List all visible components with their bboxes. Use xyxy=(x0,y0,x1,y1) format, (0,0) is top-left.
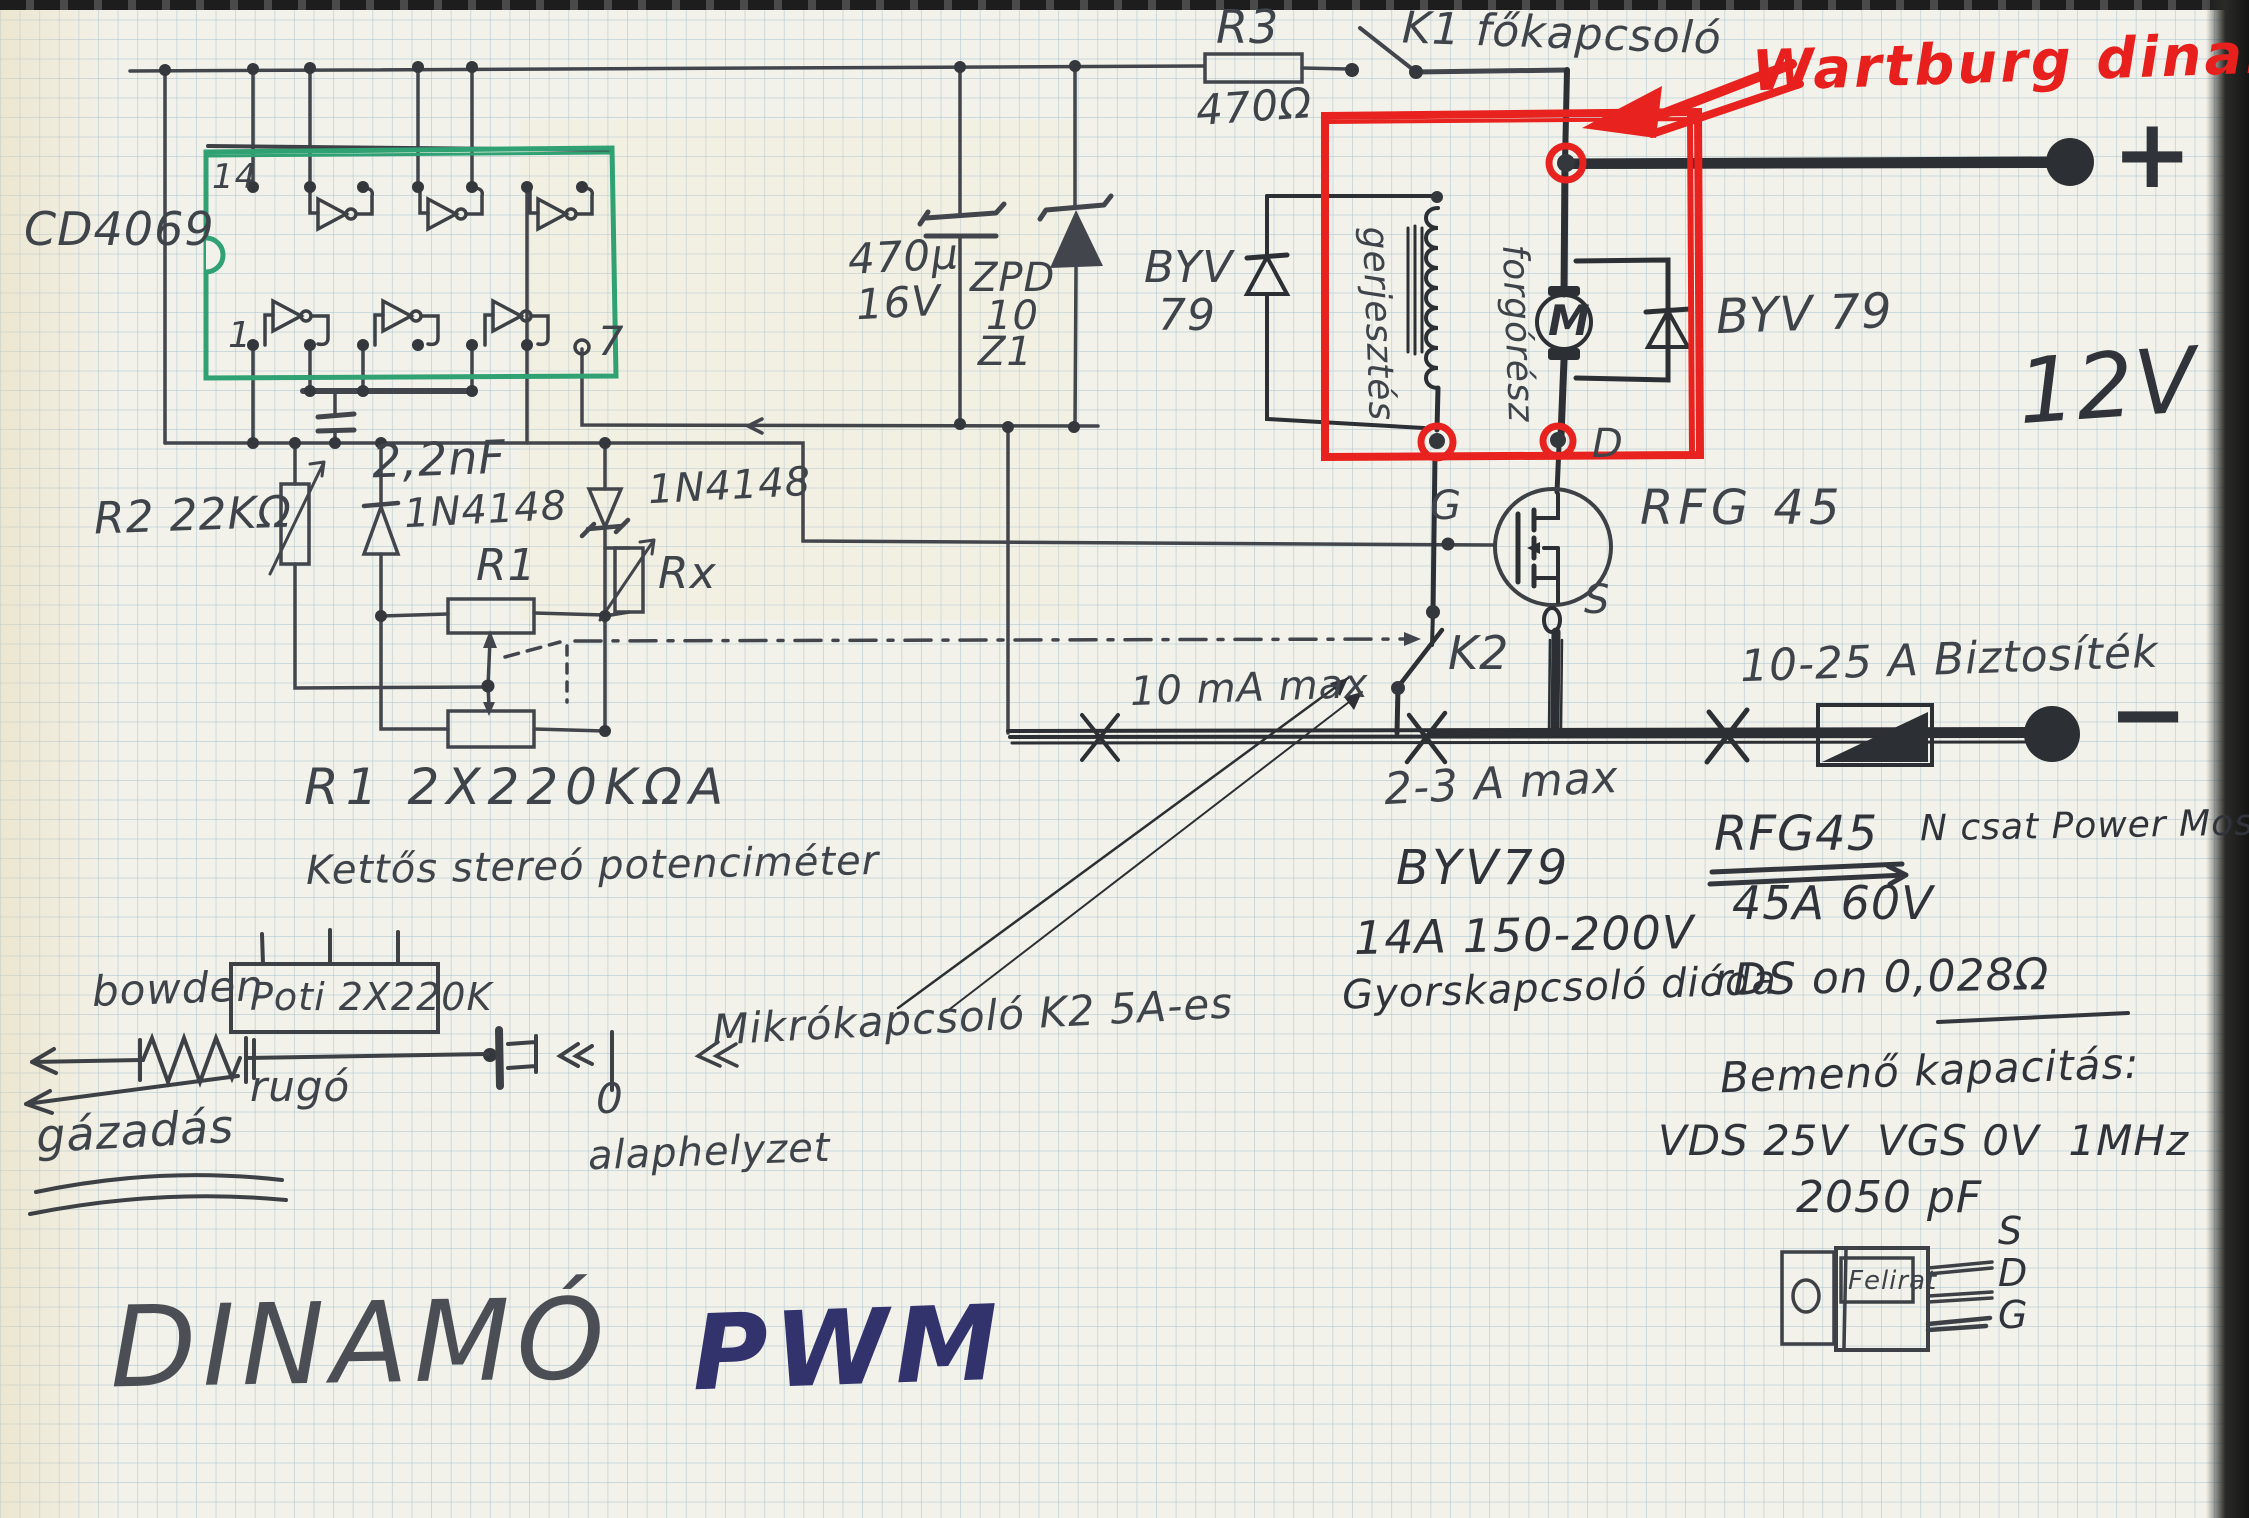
package-pin-d: D xyxy=(1998,1254,2028,1292)
mosfet-name: RFG 45 xyxy=(1640,484,1845,532)
rotor-label: forgórész xyxy=(1496,244,1538,423)
k1-switch-label: K1 főkapcsoló xyxy=(1401,6,1722,61)
motor-label: M xyxy=(1548,300,1591,342)
d2-label: 1N4148 xyxy=(647,462,812,510)
gate-current-label: 10 mA max xyxy=(1129,664,1369,712)
field-winding-label: gerjesztés xyxy=(1356,226,1399,422)
byv79-spec-rating: 14A 150-200V xyxy=(1354,909,1695,961)
byv79-left-line2: 79 xyxy=(1158,294,1216,338)
rfg45-spec-rating: 45A 60V xyxy=(1732,880,1934,926)
rx-label: Rx xyxy=(658,552,717,596)
input-capacitance-value: 2050 pF xyxy=(1796,1176,1982,1220)
page-title-accent: PWM xyxy=(690,1291,1006,1406)
gate-label: G xyxy=(1430,486,1462,526)
ic-pin7: 7 xyxy=(598,322,624,362)
rfg45-spec-rds: rDS on 0,028Ω xyxy=(1714,953,2050,1003)
r1-label: R1 xyxy=(476,544,537,588)
drain-label: D xyxy=(1592,424,1624,464)
pot-box-label: Poti 2X220K xyxy=(250,978,492,1016)
d1-label: 1N4148 xyxy=(403,486,568,534)
pot-designator: R1 2X220KΩA xyxy=(304,762,730,812)
k2-label: K2 xyxy=(1448,630,1509,676)
package-pin-s: S xyxy=(1998,1212,2023,1250)
notebook-page: Wartburg dinamó K1 főkapcsoló R3 470Ω CD… xyxy=(0,0,2249,1518)
zener-line1: ZPD xyxy=(970,258,1055,298)
package-pin-g: G xyxy=(1998,1296,2028,1334)
zero-label: 0 xyxy=(596,1078,624,1120)
home-position-label: alaphelyzet xyxy=(587,1128,831,1176)
ic-inverters xyxy=(208,146,612,354)
minus-terminal: − xyxy=(2108,666,2189,762)
page-title: DINAMÓ xyxy=(109,1284,611,1405)
spring-label: rugó xyxy=(250,1066,350,1108)
byv79-spec-name: BYV79 xyxy=(1396,844,1571,892)
plus-terminal: + xyxy=(2112,106,2193,202)
ic-pin1: 1 xyxy=(228,318,252,354)
source-label: S xyxy=(1584,580,1610,620)
cap470-voltage: 16V xyxy=(855,280,942,326)
r2-label: R2 22KΩ xyxy=(93,491,292,542)
ic-name: CD4069 xyxy=(24,206,215,252)
battery-voltage: 12V xyxy=(2015,336,2200,438)
package-inscription: Felirat xyxy=(1848,1268,1937,1294)
r3-value: 470Ω xyxy=(1195,82,1314,132)
rfg45-spec-type: N csat Power Mosfet xyxy=(1920,805,2249,848)
ic-pin14: 14 xyxy=(212,160,257,194)
rfg45-spec-name: RFG45 xyxy=(1714,810,1878,858)
input-capacitance-conditions: VDS 25V VGS 0V 1MHz xyxy=(1658,1120,2189,1162)
mosfet-package xyxy=(1782,1248,1992,1350)
cap470-value: 470µ xyxy=(847,233,960,281)
byv79-right-label: BYV 79 xyxy=(1715,287,1893,341)
bowden-label: bowden xyxy=(91,965,264,1013)
k2-rating-label: 2-3 A max xyxy=(1383,756,1620,812)
r3-name: R3 xyxy=(1216,4,1279,50)
cap22-label: 2,2nF xyxy=(371,434,506,485)
pencil-fills xyxy=(483,210,1421,716)
zener-line3: Z1 xyxy=(978,332,1033,372)
byv79-left-line1: BYV xyxy=(1144,246,1233,290)
throttle-label: gázadás xyxy=(35,1103,235,1159)
ic-outline xyxy=(206,148,616,378)
pot-description: Kettős stereó potenciméter xyxy=(306,841,880,891)
